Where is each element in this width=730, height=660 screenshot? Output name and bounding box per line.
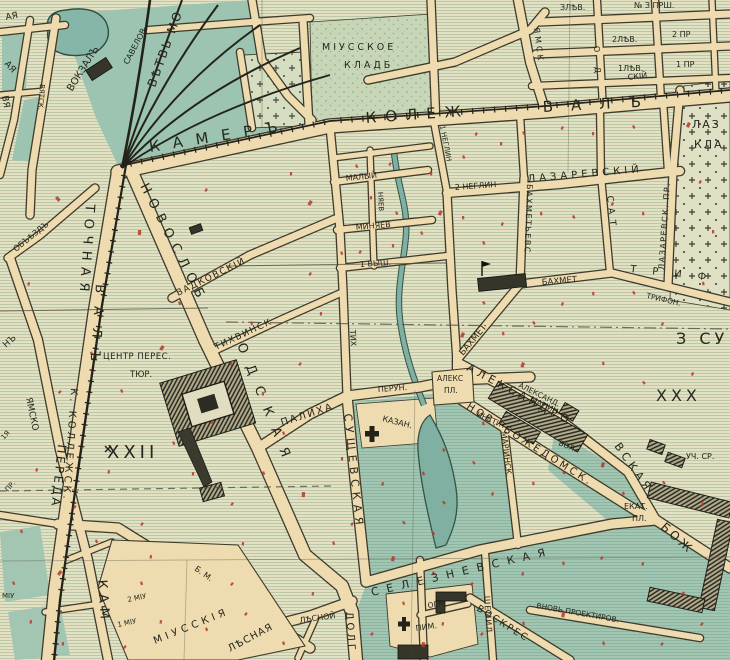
label-lev2: 2ЛѢВ. xyxy=(612,35,637,44)
label-ekat: ЕКАТ. xyxy=(624,502,648,511)
label-aleks-pl: ПЛ. xyxy=(444,386,458,395)
label-tyur2: ТЮР. xyxy=(129,370,152,380)
label-nyaev: НЯЕВ xyxy=(376,192,385,212)
label-pr3: № З ПРШ. xyxy=(634,1,674,10)
label-xxx: XXX xyxy=(656,386,701,405)
label-xxii: XXII xyxy=(107,442,158,463)
label-kladb: КЛАДБ xyxy=(344,60,393,71)
label-frag-vya: ВЯ xyxy=(0,95,11,109)
label-tikh: ТИХ xyxy=(348,329,358,347)
label-frag-aya1: АЯ xyxy=(5,11,19,23)
map-canvas[interactable]: ВОКЗАЛЪ САВЕЛОВ. ВѢТВЬ МО ВЯТСК. АЯ АЯ В… xyxy=(0,0,730,660)
label-kam: КАМ xyxy=(94,579,112,624)
label-frag-od: О Д xyxy=(592,46,602,79)
label-miusskoe: МІУССКОЕ xyxy=(322,42,396,53)
label-miu0: МІУ xyxy=(2,592,15,600)
label-uchsr: УЧ. СР. xyxy=(686,452,714,461)
label-pr1: 1 ПР xyxy=(676,60,695,69)
label-aleks: АЛЕКС xyxy=(437,374,463,383)
label-ekat-pl: ПЛ. xyxy=(632,514,647,523)
label-kla: КЛА xyxy=(694,138,724,151)
label-laz: ЛАЗ xyxy=(692,118,721,131)
label-pr2: 2 ПР xyxy=(672,30,691,39)
label-zsu: З СУ xyxy=(676,329,728,348)
map-image: ВОКЗАЛЪ САВЕЛОВ. ВѢТВЬ МО ВЯТСК. АЯ АЯ В… xyxy=(0,0,730,660)
label-lev3: ЗЛѢВ. xyxy=(560,3,585,12)
label-tyur1: ЦЕНТР ПЕРЕС. xyxy=(103,352,171,362)
